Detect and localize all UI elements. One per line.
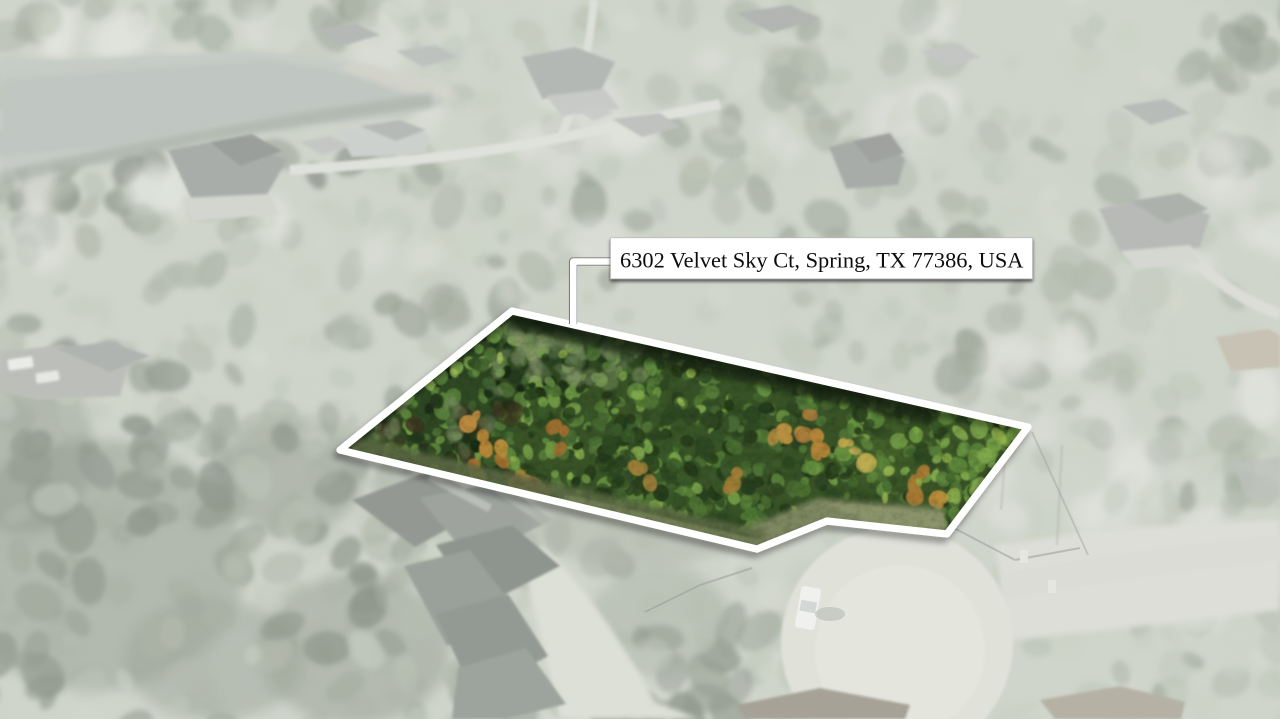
svg-text:6302 Velvet Sky Ct, Spring, TX: 6302 Velvet Sky Ct, Spring, TX 77386, US… (620, 247, 1023, 272)
